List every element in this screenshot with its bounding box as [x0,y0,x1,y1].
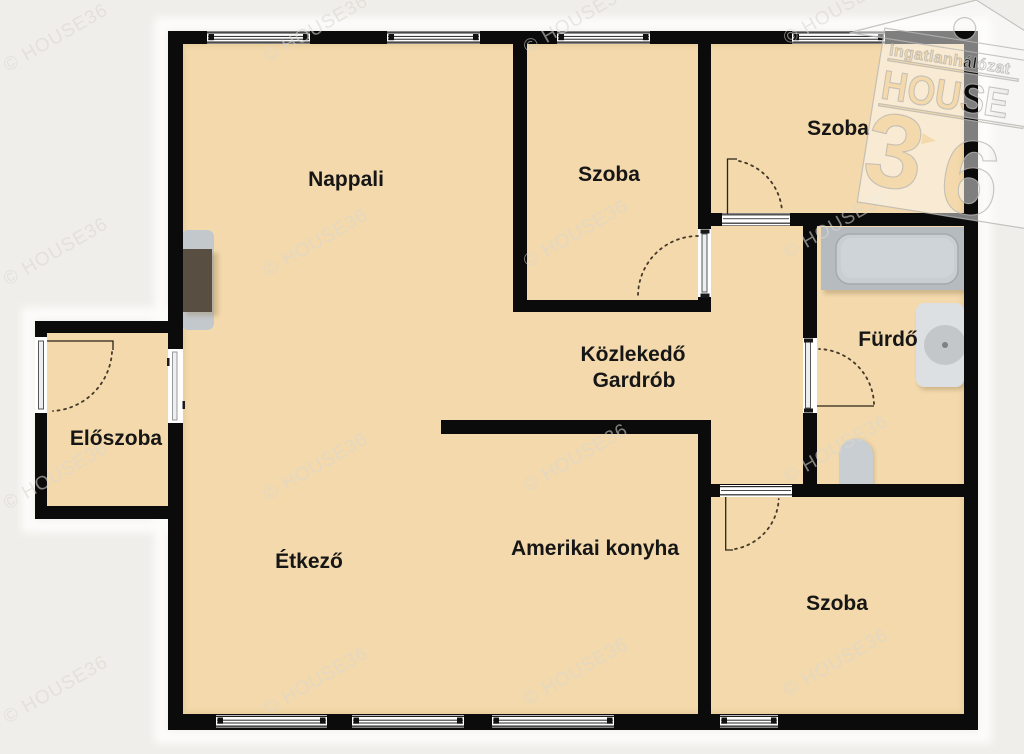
svg-text:Közlekedő: Közlekedő [580,343,685,366]
svg-text:Amerikai konyha: Amerikai konyha [511,537,679,560]
svg-text:Nappali: Nappali [308,168,384,191]
svg-text:Fürdő: Fürdő [858,328,917,351]
svg-text:Szoba: Szoba [806,592,868,615]
svg-text:Étkező: Étkező [275,550,343,573]
svg-text:Szoba: Szoba [578,163,640,186]
svg-text:Előszoba: Előszoba [70,427,163,450]
svg-text:Gardrób: Gardrób [593,369,676,392]
